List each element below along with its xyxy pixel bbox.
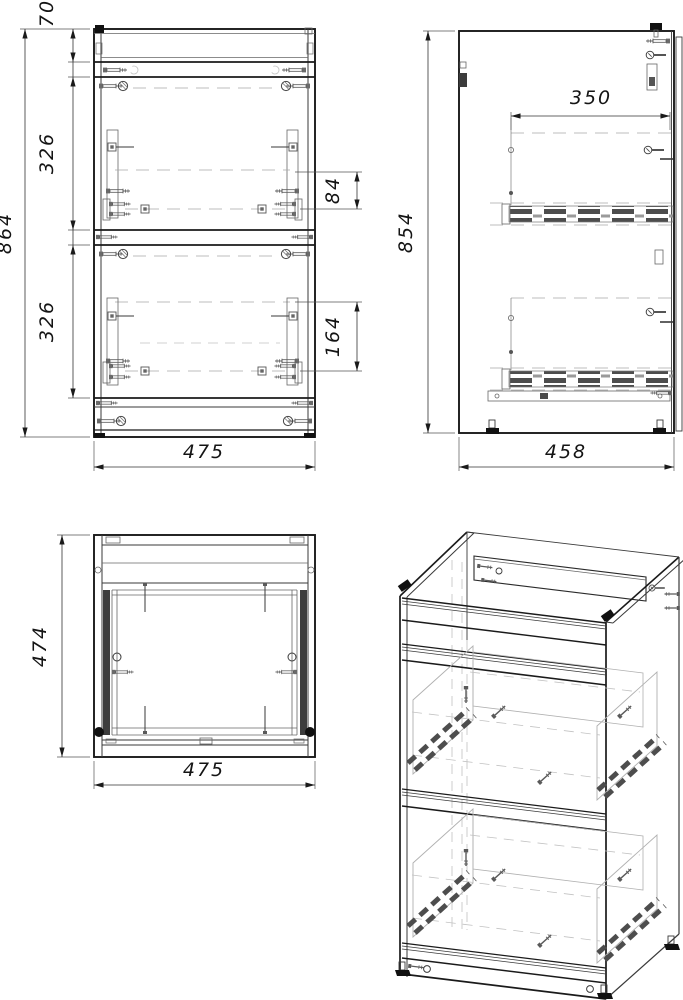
dim-front-slide1-offset: 84 xyxy=(322,176,344,204)
corner-cap-icon xyxy=(398,579,412,592)
foot-icon xyxy=(395,936,680,999)
drawing-page: 70 326 326 864 84 164 475 xyxy=(0,0,683,1000)
foot-icon xyxy=(304,433,315,438)
side-view: 350 854 458 xyxy=(395,23,682,471)
foot-icon xyxy=(305,727,315,737)
dim-front-top-rail: 70 xyxy=(36,0,58,27)
dim-front-overall-height: 864 xyxy=(0,212,16,254)
screw-icon xyxy=(143,583,267,734)
corner-cap-icon xyxy=(650,23,662,30)
dim-front-drawer1: 326 xyxy=(36,132,58,174)
front-view: 70 326 326 864 84 164 475 xyxy=(0,0,362,471)
dim-front-drawer2: 326 xyxy=(36,300,58,342)
top-view: 474 475 xyxy=(29,535,315,789)
foot-icon xyxy=(653,428,666,434)
dim-front-slide2-offset: 164 xyxy=(322,315,344,357)
foot-icon xyxy=(486,428,499,434)
dim-side-depth: 458 xyxy=(545,441,587,463)
dim-top-depth: 474 xyxy=(29,625,51,667)
isometric-view xyxy=(395,532,683,999)
dim-front-width: 475 xyxy=(183,441,225,463)
dim-top-width: 475 xyxy=(183,759,225,781)
technical-drawing: 70 326 326 864 84 164 475 xyxy=(0,0,683,1000)
drawer1-wireframe xyxy=(408,646,665,800)
foot-icon xyxy=(94,433,105,438)
dim-side-slide-length: 350 xyxy=(570,87,612,109)
foot-icon xyxy=(94,727,104,737)
corner-bracket-icon xyxy=(95,25,104,33)
dim-side-height: 854 xyxy=(395,211,417,253)
drawer2-wireframe xyxy=(408,809,665,963)
